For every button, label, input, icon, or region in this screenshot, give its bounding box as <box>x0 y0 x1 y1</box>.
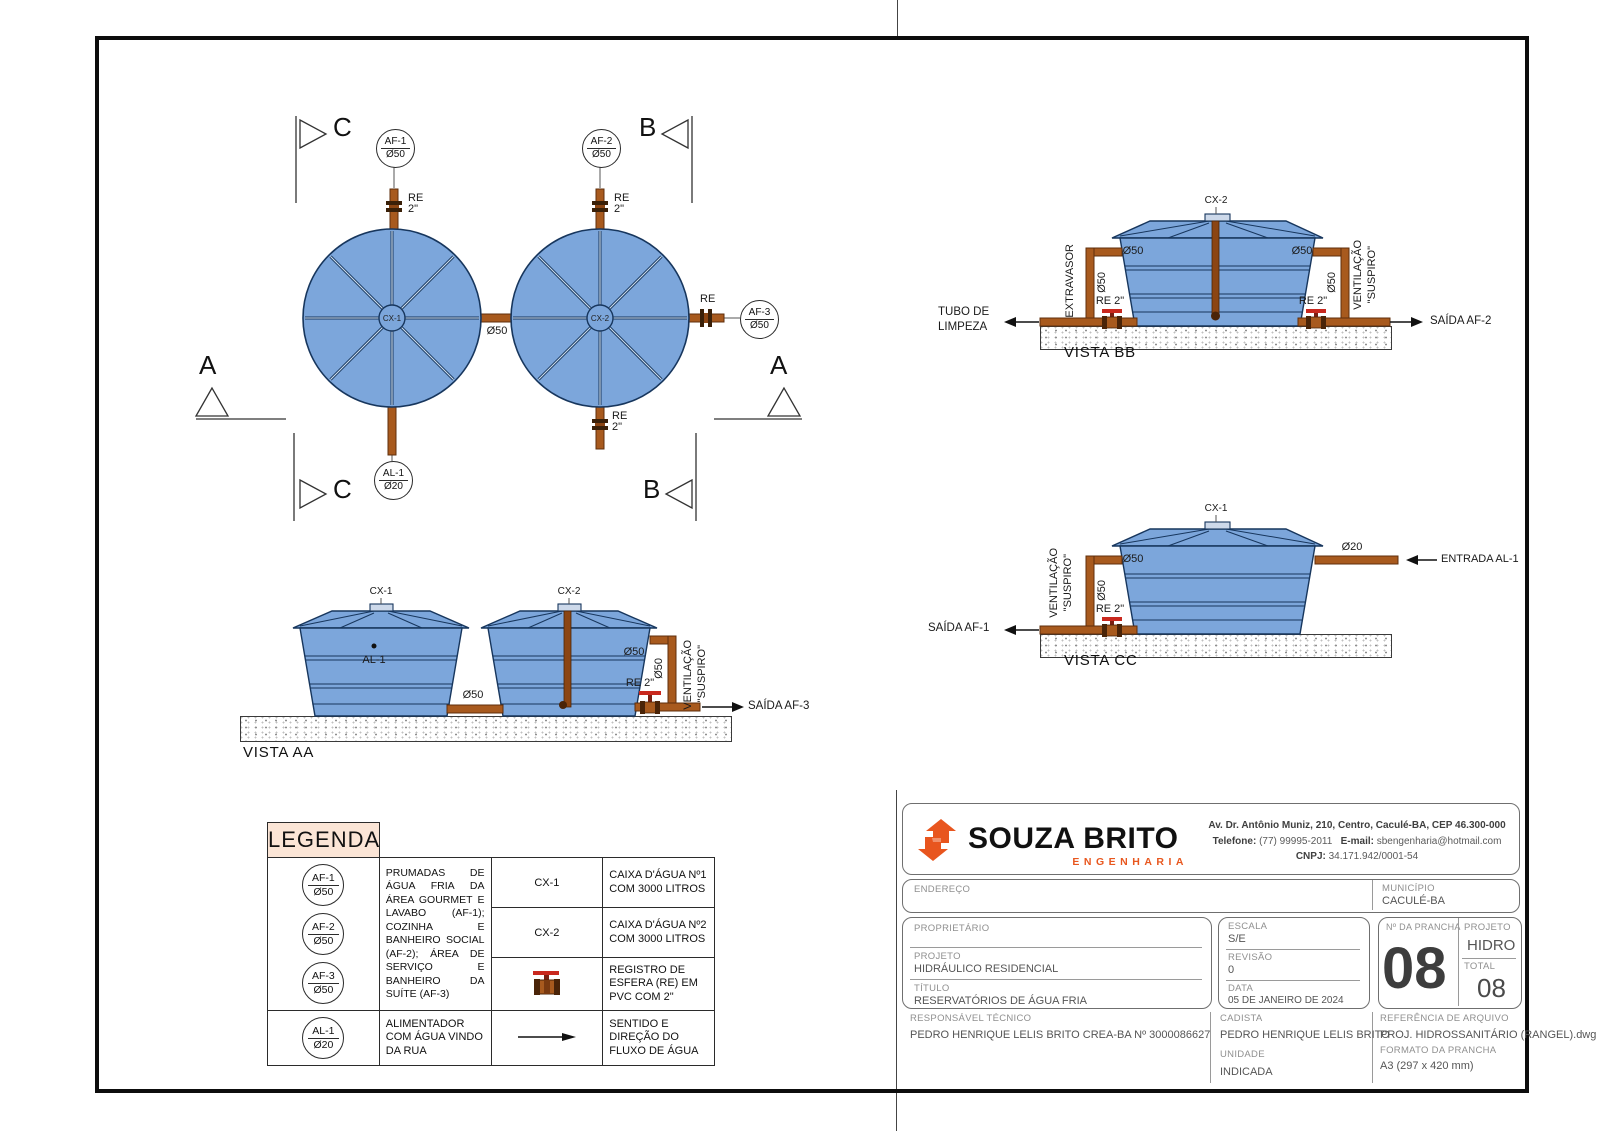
tag-af2: AF-2Ø50 <box>302 913 344 955</box>
re2-label: RE 2" <box>626 677 654 690</box>
escala-value: S/E <box>1228 933 1246 945</box>
ref-value: PROJ. HIDROSSANITÁRIO (RANGEL).dwg <box>1380 1029 1596 1041</box>
proprietario-label: PROPRIETÁRIO <box>914 923 989 934</box>
divider <box>1372 880 1373 910</box>
section-letter-a-right: A <box>770 352 787 378</box>
tank-cx2-elevation <box>1112 207 1323 326</box>
endereco-label: ENDEREÇO <box>914 884 970 895</box>
re2-label: RE 2" <box>1096 295 1124 308</box>
suspiro-label: "SUSPIRO" <box>696 645 708 702</box>
divider <box>1210 1012 1211 1083</box>
cadista-label: CADISTA <box>1220 1013 1263 1024</box>
re2-label: RE2" <box>614 193 629 215</box>
legend-tags-cell: AF-1Ø50 AF-2Ø50 AF-3Ø50 <box>268 858 380 1011</box>
legend-registro-desc: REGISTRO DE ESFERA (RE) EM PVC COM 2" <box>603 958 715 1011</box>
projeto-value: HIDRÁULICO RESIDENCIAL <box>914 963 1058 975</box>
pipe-size-label: Ø20 <box>1342 541 1363 554</box>
valve-icon <box>639 691 661 714</box>
legend-alimentador-desc: ALIMENTADOR COM ÁGUA VINDO DA RUA <box>379 1011 491 1066</box>
section-letter-b-top: B <box>639 114 656 140</box>
resp-value: PEDRO HENRIQUE LELIS BRITO CREA-BA Nº 30… <box>910 1029 1210 1041</box>
projeto-tipo-value: HIDRO <box>1467 937 1515 954</box>
tank-label: CX-1 <box>370 585 393 598</box>
tag-af2: AF-2Ø50 <box>582 129 621 168</box>
legend-al1-cell: AL-1Ø20 <box>268 1011 380 1066</box>
pipe-size-label: Ø50 <box>1096 272 1108 293</box>
company-cnpj: CNPJ: 34.171.942/0001-54 <box>1198 849 1516 865</box>
legend-table: LEGENDA AF-1Ø50 AF-2Ø50 AF-3Ø50 PRUMADAS… <box>267 822 715 1066</box>
legend-valve-cell <box>491 958 603 1011</box>
projeto-label: PROJETO <box>914 951 961 962</box>
pipe-size-label: Ø50 <box>1096 580 1108 601</box>
legend-arrow-cell <box>491 1011 603 1066</box>
pipe-size-label: Ø50 <box>1292 245 1313 258</box>
re2-label: RE2" <box>612 411 627 433</box>
data-value: 05 DE JANEIRO DE 2024 <box>1228 995 1344 1006</box>
ventilacao-label: VENTILAÇÃO <box>1352 240 1364 310</box>
cadista-value: PEDRO HENRIQUE LELIS BRITO <box>1220 1029 1390 1041</box>
divider <box>1458 918 1459 1006</box>
legend-cx1-desc: CAIXA D'ÁGUA Nº1 COM 3000 LITROS <box>603 858 715 908</box>
ref-label: REFERÊNCIA DE ARQUIVO <box>1380 1013 1509 1024</box>
fold-mark-top <box>897 0 898 38</box>
municipio-value: CACULÉ-BA <box>1382 895 1445 907</box>
brand-sub: ENGENHARIA <box>1008 856 1188 868</box>
section-c-bottom-icon <box>300 480 326 508</box>
legend-title: LEGENDA <box>268 823 380 858</box>
section-a-right-icon <box>768 388 800 416</box>
section-letter-a-left: A <box>199 352 216 378</box>
flow-arrow-icon <box>516 1031 578 1043</box>
section-b-top-icon <box>662 120 688 148</box>
section-a-left-icon <box>196 388 228 416</box>
unidade-value: INDICADA <box>1220 1066 1273 1078</box>
tank-label: CX-2 <box>1205 194 1228 207</box>
souza-brito-logo-icon <box>914 817 960 863</box>
unidade-label: UNIDADE <box>1220 1049 1265 1060</box>
saida-af1-label: SAÍDA AF-1 <box>928 622 989 635</box>
valve-icon <box>592 419 608 430</box>
company-contact: Av. Dr. Antônio Muniz, 210, Centro, Cacu… <box>1198 818 1516 865</box>
section-letter-b-bottom: B <box>643 476 660 502</box>
legend-prumadas-desc: PRUMADAS DE ÁGUA FRIA DA ÁREA GOURMET E … <box>379 858 491 1011</box>
legend-cx2-code: CX-2 <box>491 908 603 958</box>
pipe-size-label: Ø50 <box>624 646 645 659</box>
re2-label: RE2" <box>408 193 423 215</box>
total-number: 08 <box>1477 973 1506 1004</box>
pipe-size-label: Ø50 <box>1326 272 1338 293</box>
tag-al1: AL-1Ø20 <box>374 461 413 500</box>
tank-cx1-id: CX-1 <box>383 312 401 325</box>
vista-cc-title: VISTA CC <box>1064 652 1138 669</box>
saida-af3-label: SAÍDA AF-3 <box>748 700 809 713</box>
tag-af3: AF-3Ø50 <box>302 962 344 1004</box>
entrada-al1-label: ENTRADA AL-1 <box>1441 553 1519 566</box>
company-phone-email: Telefone: (77) 99995-2011 E-mail: sbenge… <box>1198 834 1516 850</box>
projeto-tipo-label: PROJETO <box>1464 922 1511 933</box>
flow-arrow-icon <box>1004 625 1039 635</box>
legend-cx2-desc: CAIXA D'ÁGUA Nº2 COM 3000 LITROS <box>603 908 715 958</box>
divider <box>1462 958 1516 959</box>
tank-label: CX-2 <box>558 585 581 598</box>
ventilacao-label: VENTILAÇÃO <box>1048 548 1060 618</box>
flow-arrow-icon <box>1004 317 1039 327</box>
tank-cx2-id: CX-2 <box>591 312 609 325</box>
divider <box>1372 1012 1373 1083</box>
section-letter-c-top: C <box>333 114 352 140</box>
divider <box>910 947 1202 948</box>
tag-af3: AF-3Ø50 <box>740 300 779 339</box>
pipe-size-label: Ø50 <box>1123 245 1144 258</box>
revisao-value: 0 <box>1228 964 1234 976</box>
resp-label: RESPONSÁVEL TÉCNICO <box>910 1013 1031 1024</box>
vista-bb-title: VISTA BB <box>1064 344 1136 361</box>
ball-valve-icon <box>527 969 567 997</box>
valve-icon <box>1102 617 1122 637</box>
suspiro-label: "SUSPIRO" <box>1062 554 1074 611</box>
vista-aa-title: VISTA AA <box>243 744 314 761</box>
escala-label: ESCALA <box>1228 921 1267 932</box>
data-label: DATA <box>1228 983 1253 994</box>
divider <box>1226 980 1360 981</box>
formato-label: FORMATO DA PRANCHA <box>1380 1045 1496 1056</box>
flow-arrow-icon <box>702 702 744 712</box>
saida-af2-label: SAÍDA AF-2 <box>1430 315 1491 328</box>
section-b-bottom-icon <box>666 480 692 508</box>
section-letter-c-bottom: C <box>333 476 352 502</box>
re-label: RE <box>700 293 715 306</box>
titulo-value: RESERVATÓRIOS DE ÁGUA FRIA <box>914 995 1087 1007</box>
legend-sentido-desc: SENTIDO E DIREÇÃO DO FLUXO DE ÁGUA <box>603 1011 715 1066</box>
prancha-label: Nº DA PRANCHA <box>1386 922 1461 932</box>
divider <box>910 979 1202 980</box>
pipe-size-label: Ø50 <box>487 325 508 338</box>
re2-label: RE 2" <box>1299 295 1327 308</box>
brand-name: SOUZA BRITO <box>968 822 1179 856</box>
pipe-size-label: Ø50 <box>1123 553 1144 566</box>
tubo-limpeza-label: TUBO DE <box>938 306 989 319</box>
tank-label: CX-1 <box>1205 502 1228 515</box>
pipe-size-label: Ø50 <box>463 689 484 702</box>
municipio-label: MUNICÍPIO <box>1382 883 1435 894</box>
al1-label: AL-1 <box>362 654 385 667</box>
valve-icon <box>386 201 402 212</box>
tag-af1: AF-1Ø50 <box>376 129 415 168</box>
re2-label: RE 2" <box>1096 603 1124 616</box>
total-label: TOTAL <box>1464 961 1495 972</box>
extravasor-label: EXTRAVASOR <box>1064 244 1076 318</box>
tubo-limpeza-label: LIMPEZA <box>938 321 987 334</box>
legend-cx1-code: CX-1 <box>491 858 603 908</box>
ventilacao-label: VENTILAÇÃO <box>682 640 694 710</box>
revisao-label: REVISÃO <box>1228 952 1272 963</box>
tag-af1: AF-1Ø50 <box>302 864 344 906</box>
section-c-top-icon <box>300 120 326 148</box>
titulo-label: TÍTULO <box>914 983 950 994</box>
valve-icon <box>1306 309 1326 329</box>
drawing-sheet: C B C B A A AF-1Ø50 AF-2Ø50 AF-3Ø50 AL-1… <box>0 0 1600 1131</box>
tag-al1: AL-1Ø20 <box>302 1017 344 1059</box>
divider <box>1226 949 1360 950</box>
flow-arrow-icon <box>1390 317 1423 327</box>
company-address: Av. Dr. Antônio Muniz, 210, Centro, Cacu… <box>1198 818 1516 834</box>
suspiro-label: "SUSPIRO" <box>1366 246 1378 303</box>
pipe-size-label: Ø50 <box>653 658 665 679</box>
flow-arrow-icon <box>1406 555 1437 565</box>
valve-icon <box>1102 309 1122 329</box>
prancha-number: 08 <box>1382 935 1447 1002</box>
formato-value: A3 (297 x 420 mm) <box>1380 1060 1474 1072</box>
valve-icon <box>592 201 608 212</box>
valve-icon <box>700 309 712 327</box>
tank-cx1-elevation <box>1112 515 1323 634</box>
